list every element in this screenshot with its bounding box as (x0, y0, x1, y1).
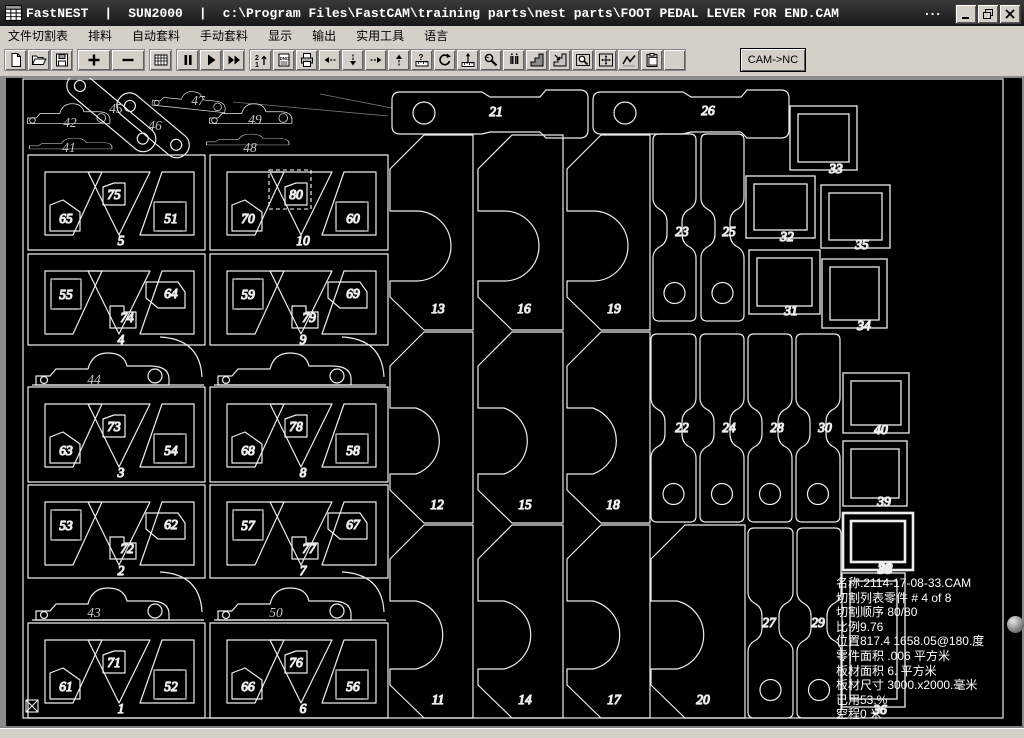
toolbar-group-4: 21DNC? (249, 49, 686, 71)
step-block-arrow-button[interactable] (548, 49, 571, 71)
toolbar: 21DNC? CAM->NC (0, 44, 1024, 76)
open-file-path: c:\Program Files\FastCAM\training parts\… (223, 6, 839, 21)
magnify-wrench-icon (483, 52, 499, 68)
cam-to-nc-button[interactable]: CAM->NC (740, 48, 806, 72)
svg-text:72: 72 (120, 541, 134, 556)
svg-text:9: 9 (300, 332, 307, 347)
svg-text:58: 58 (346, 443, 360, 458)
svg-text:27: 27 (762, 615, 777, 630)
svg-text:34: 34 (856, 318, 871, 333)
svg-text:15: 15 (518, 497, 532, 512)
rotate-button[interactable] (433, 49, 456, 71)
pause-icon (180, 52, 196, 68)
svg-text:6: 6 (300, 701, 307, 716)
svg-text:4: 4 (118, 332, 125, 347)
new-file-icon (8, 52, 24, 68)
menu-file-cutlist[interactable]: 文件切割表 (0, 26, 78, 45)
svg-text:73: 73 (107, 419, 121, 434)
svg-text:16: 16 (517, 301, 531, 316)
svg-text:75: 75 (107, 187, 121, 202)
minus-icon (120, 52, 136, 68)
nesting-canvas[interactable]: 6575515708060105574644597969963735436878… (6, 78, 1022, 728)
zoom-extents-icon (598, 52, 614, 68)
svg-text:63: 63 (59, 443, 73, 458)
svg-text:67: 67 (346, 517, 361, 532)
svg-text:69: 69 (346, 286, 360, 301)
svg-text:DNC: DNC (279, 56, 288, 61)
zoom-extents-button[interactable] (594, 49, 617, 71)
print-button[interactable] (295, 49, 318, 71)
zoom-window-icon (575, 52, 591, 68)
menu-auto-nest[interactable]: 自动套料 (122, 26, 190, 45)
svg-text:39: 39 (876, 494, 891, 509)
close-button[interactable] (999, 4, 1021, 24)
path-curve-button[interactable] (617, 49, 640, 71)
print-icon (299, 52, 315, 68)
new-file-button[interactable] (4, 49, 27, 71)
svg-text:60: 60 (346, 211, 360, 226)
menu-utilities[interactable]: 实用工具 (346, 26, 414, 45)
status-bar (0, 728, 1024, 738)
mouse-cursor (1007, 616, 1024, 633)
svg-text:24: 24 (722, 420, 736, 435)
svg-text:28: 28 (770, 420, 784, 435)
path-curve-icon (621, 52, 637, 68)
svg-text:21: 21 (489, 104, 503, 119)
menu-output[interactable]: 输出 (302, 26, 346, 45)
blank-button[interactable] (663, 49, 686, 71)
app-title: FastNEST (26, 6, 88, 21)
arrow-left-button[interactable] (318, 49, 341, 71)
svg-text:76: 76 (289, 655, 303, 670)
title-bar[interactable]: FastNEST | SUN2000 | c:\Program Files\Fa… (0, 0, 1024, 26)
svg-text:40: 40 (874, 422, 888, 437)
svg-text:79: 79 (302, 310, 316, 325)
menu-bar: 文件切割表 排料 自动套料 手动套料 显示 输出 实用工具 语言 (0, 26, 1024, 45)
svg-text:14: 14 (518, 692, 532, 707)
save-icon (54, 52, 70, 68)
svg-text:11: 11 (432, 692, 445, 707)
svg-text:26: 26 (701, 103, 715, 118)
restore-button[interactable] (977, 4, 999, 24)
svg-text:54: 54 (164, 443, 178, 458)
measure-ruler-button[interactable]: ? (410, 49, 433, 71)
fast-forward-button[interactable] (222, 49, 245, 71)
menu-manual-nest[interactable]: 手动套料 (190, 26, 258, 45)
arrow-left-icon (322, 52, 338, 68)
svg-text:8: 8 (300, 465, 307, 480)
nc-code-button[interactable]: DNC (272, 49, 295, 71)
play-icon (203, 52, 219, 68)
canvas-area: 6575515708060105574644597969963735436878… (0, 76, 1024, 728)
svg-text:59: 59 (241, 287, 255, 302)
toolbar-group-0 (4, 49, 73, 71)
step-block-arrow-icon (552, 52, 568, 68)
svg-text:42: 42 (63, 115, 77, 130)
menu-display[interactable]: 显示 (258, 26, 302, 45)
svg-text:18: 18 (606, 497, 620, 512)
svg-text:12: 12 (430, 497, 444, 512)
grid-button[interactable] (149, 49, 172, 71)
height-gauge-button[interactable] (456, 49, 479, 71)
svg-text:68: 68 (241, 443, 255, 458)
svg-text:52: 52 (164, 679, 178, 694)
play-button[interactable] (199, 49, 222, 71)
pierce-points-button[interactable] (502, 49, 525, 71)
svg-text:46: 46 (148, 118, 162, 133)
svg-text:56: 56 (346, 679, 360, 694)
svg-text:5: 5 (118, 233, 125, 248)
arrow-up-icon (391, 52, 407, 68)
arrow-right-icon (368, 52, 384, 68)
svg-text:55: 55 (59, 287, 73, 302)
svg-text:1: 1 (118, 701, 125, 716)
blank-icon (667, 52, 683, 68)
step-block-button[interactable] (525, 49, 548, 71)
svg-text:36: 36 (872, 702, 887, 717)
minimize-button[interactable] (955, 4, 977, 24)
svg-text:74: 74 (120, 310, 134, 325)
svg-text:64: 64 (164, 286, 178, 301)
title-ellipsis: ... (925, 3, 942, 18)
title-separator: | (104, 6, 112, 21)
grid-icon (153, 52, 169, 68)
svg-text:48: 48 (243, 140, 257, 155)
toolbar-group-1 (77, 49, 145, 71)
svg-text:62: 62 (164, 517, 178, 532)
pierce-points-icon (506, 52, 522, 68)
save-button[interactable] (50, 49, 73, 71)
toolbar-group-3 (176, 49, 245, 71)
height-gauge-icon (460, 52, 476, 68)
svg-text:66: 66 (241, 679, 255, 694)
fastnest-window: FastNEST | SUN2000 | c:\Program Files\Fa… (0, 0, 1024, 738)
svg-text:30: 30 (817, 420, 832, 435)
magnify-wrench-button[interactable] (479, 49, 502, 71)
svg-text:23: 23 (675, 224, 689, 239)
arrow-right-button[interactable] (364, 49, 387, 71)
svg-text:80: 80 (289, 187, 303, 202)
svg-text:45: 45 (109, 101, 123, 116)
svg-text:19: 19 (607, 301, 621, 316)
arrow-down-button[interactable] (341, 49, 364, 71)
minimize-icon (960, 8, 972, 20)
clipboard-icon (644, 52, 660, 68)
svg-text:78: 78 (289, 419, 303, 434)
svg-text:49: 49 (248, 112, 262, 127)
svg-text:71: 71 (107, 655, 121, 670)
menu-nest[interactable]: 排料 (78, 26, 122, 45)
svg-text:51: 51 (164, 211, 178, 226)
measure-ruler-icon: ? (414, 52, 430, 68)
arrow-down-icon (345, 52, 361, 68)
svg-text:25: 25 (722, 224, 736, 239)
menu-language[interactable]: 语言 (414, 26, 458, 45)
plus-icon (86, 52, 102, 68)
svg-text:?: ? (418, 53, 423, 62)
svg-text:47: 47 (191, 93, 206, 108)
open-folder-icon (31, 52, 47, 68)
svg-text:1: 1 (255, 62, 259, 68)
minus-button[interactable] (111, 49, 145, 71)
svg-text:33: 33 (828, 161, 843, 176)
svg-text:29: 29 (811, 615, 825, 630)
rotate-icon (437, 52, 453, 68)
svg-text:22: 22 (675, 420, 689, 435)
plus-button[interactable] (77, 49, 111, 71)
svg-text:57: 57 (241, 518, 256, 533)
close-icon (1004, 8, 1016, 20)
svg-text:53: 53 (59, 518, 73, 533)
svg-text:2: 2 (255, 55, 259, 62)
svg-text:35: 35 (854, 237, 869, 252)
fast-forward-icon (226, 52, 242, 68)
restore-icon (982, 8, 994, 20)
svg-text:20: 20 (696, 692, 710, 707)
toolbar-group-2 (149, 49, 172, 71)
nc-code-icon: DNC (276, 52, 292, 68)
step-block-icon (529, 52, 545, 68)
sequence-21-icon: 21 (253, 52, 269, 68)
arrow-up-button[interactable] (387, 49, 410, 71)
svg-text:13: 13 (431, 301, 445, 316)
clipboard-button[interactable] (640, 49, 663, 71)
sequence-21-button[interactable]: 21 (249, 49, 272, 71)
pause-button[interactable] (176, 49, 199, 71)
svg-text:41: 41 (62, 140, 76, 155)
zoom-window-button[interactable] (571, 49, 594, 71)
open-folder-button[interactable] (27, 49, 50, 71)
svg-text:70: 70 (241, 211, 255, 226)
svg-text:65: 65 (59, 211, 73, 226)
svg-text:38: 38 (877, 561, 892, 576)
app-icon (5, 5, 22, 22)
license-name: SUN2000 (128, 6, 183, 21)
svg-text:44: 44 (87, 372, 101, 387)
svg-text:61: 61 (59, 679, 73, 694)
svg-text:3: 3 (117, 465, 125, 480)
svg-text:2: 2 (118, 563, 125, 578)
svg-text:17: 17 (607, 692, 622, 707)
svg-text:50: 50 (269, 605, 283, 620)
svg-text:32: 32 (779, 229, 794, 244)
svg-text:31: 31 (783, 303, 798, 318)
svg-text:43: 43 (87, 605, 101, 620)
svg-text:77: 77 (302, 541, 317, 556)
svg-text:10: 10 (296, 233, 310, 248)
title-separator: | (199, 6, 207, 21)
